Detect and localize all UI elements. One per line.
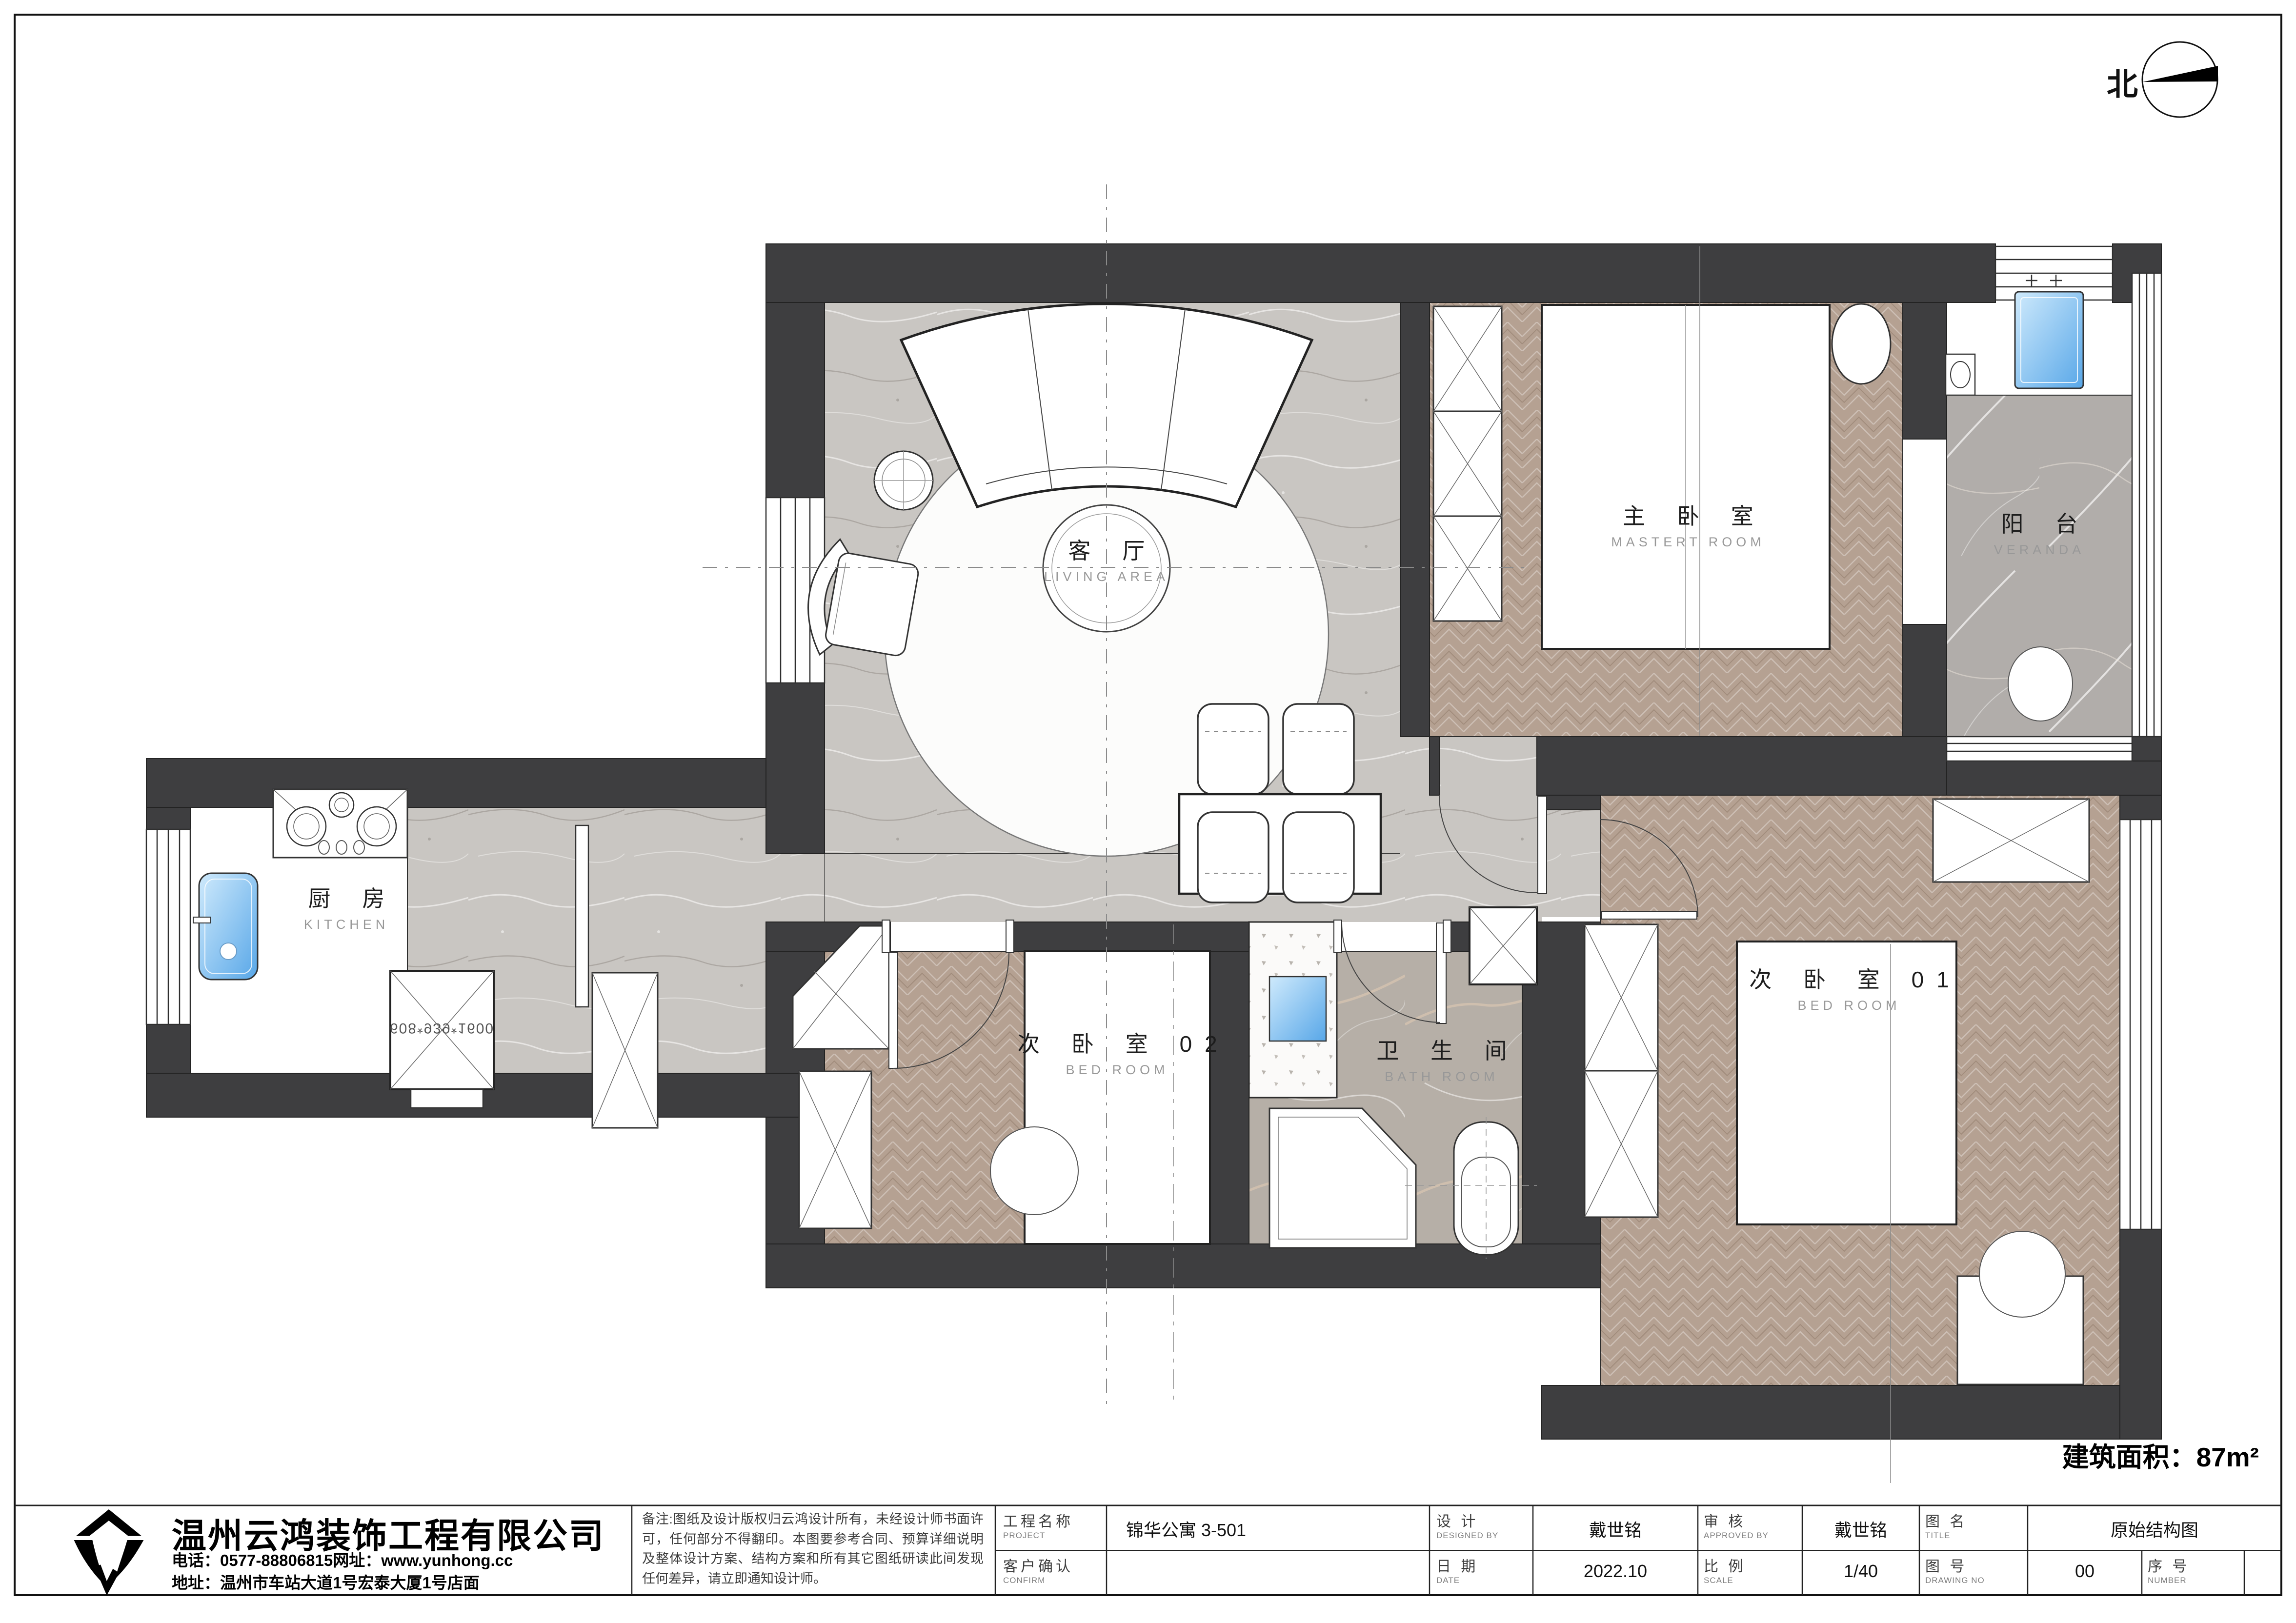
tb-number-zh: 序 号: [2148, 1554, 2190, 1576]
kitchen-door-leaf: [576, 825, 588, 1007]
bed01-bed: [1737, 942, 1956, 1224]
tb-drawingno-zh: 图 号: [1925, 1554, 1967, 1576]
tb-project-zh: 工程名称: [1003, 1509, 1073, 1531]
tb-title-zh: 图 名: [1925, 1509, 1967, 1531]
tb-scale-value: 1/40: [1802, 1561, 1919, 1582]
tb-project-value: 锦华公寓 3-501: [1126, 1516, 1246, 1542]
master-wardrobe: [1433, 306, 1502, 621]
duct-shaft: [1470, 907, 1537, 984]
tb-date-en: DATE: [1436, 1576, 1460, 1585]
washing-basin: [2015, 292, 2083, 388]
north-compass-icon: [2142, 42, 2218, 117]
tb-scale-en: SCALE: [1704, 1576, 1733, 1585]
notes-text: 备注:图纸及设计版权归云鸿设计所有，未经设计师书面许可，任何部分不得翻印。本图要…: [642, 1509, 984, 1588]
tb-confirm-zh: 客户确认: [1003, 1554, 1073, 1576]
bed01-stool: [1979, 1231, 2065, 1317]
tb-project-en: PROJECT: [1003, 1531, 1045, 1541]
hall-cabinet: [592, 973, 658, 1128]
tb-number-en: NUMBER: [2148, 1576, 2187, 1585]
gas-stove: [273, 789, 407, 858]
kitchen-cabinet: [390, 971, 494, 1108]
bedside-table: [1832, 304, 1891, 384]
company-address: 地址：温州市车站大道1号宏泰大厦1号店面: [172, 1570, 480, 1593]
tb-date-value: 2022.10: [1533, 1561, 1698, 1582]
window-veranda-east: [2132, 273, 2161, 737]
tb-confirm-en: CONFIRM: [1003, 1576, 1045, 1585]
bed01-wardrobe-top: [1933, 799, 2089, 882]
bed02-wardrobe-bottom: [799, 1071, 871, 1228]
veranda-fixture: [1946, 354, 1975, 395]
window-veranda-south-sill: [1947, 737, 2132, 761]
window-kitchen-west: [146, 829, 190, 1024]
north-label: 北: [2107, 60, 2138, 104]
tb-designed-zh: 设 计: [1436, 1509, 1478, 1531]
cabinet-dimension-text: 608*939*1600: [388, 1020, 496, 1036]
tb-title-value: 原始结构图: [2028, 1516, 2281, 1542]
shower-glass: [1269, 977, 1326, 1041]
bed02-stool: [990, 1127, 1078, 1215]
bed01-wardrobe-tall: [1585, 924, 1658, 1217]
building-area-label: 建筑面积：87m²: [1995, 1435, 2259, 1474]
drawing-sheet: { "sheet": { "area_label": "建筑面积：87m²", …: [0, 0, 2296, 1623]
floor-plan-drawing: [0, 0, 2296, 1623]
tb-approved-en: APPROVED BY: [1704, 1531, 1769, 1541]
tb-approved-zh: 审 核: [1704, 1509, 1746, 1531]
tb-approved-value: 戴世铭: [1802, 1516, 1919, 1542]
side-table: [874, 451, 933, 510]
tb-designed-en: DESIGNED BY: [1436, 1531, 1498, 1541]
tb-designed-value: 戴世铭: [1533, 1516, 1698, 1542]
window-bed01-east: [2120, 820, 2161, 1229]
kitchen-sink: [193, 873, 258, 980]
tb-title-en: TITLE: [1925, 1531, 1950, 1541]
tb-drawingno-value: 00: [2028, 1561, 2142, 1582]
company-phone: 电话：0577-88806815网址：www.yunhong.cc: [172, 1547, 513, 1571]
fan-sofa: [901, 304, 1312, 507]
veranda-drain: [2008, 647, 2073, 721]
company-logo: [74, 1509, 144, 1595]
tb-scale-zh: 比 例: [1704, 1554, 1746, 1576]
tb-drawingno-en: DRAWING NO: [1925, 1576, 1985, 1585]
tb-date-zh: 日 期: [1436, 1554, 1478, 1576]
